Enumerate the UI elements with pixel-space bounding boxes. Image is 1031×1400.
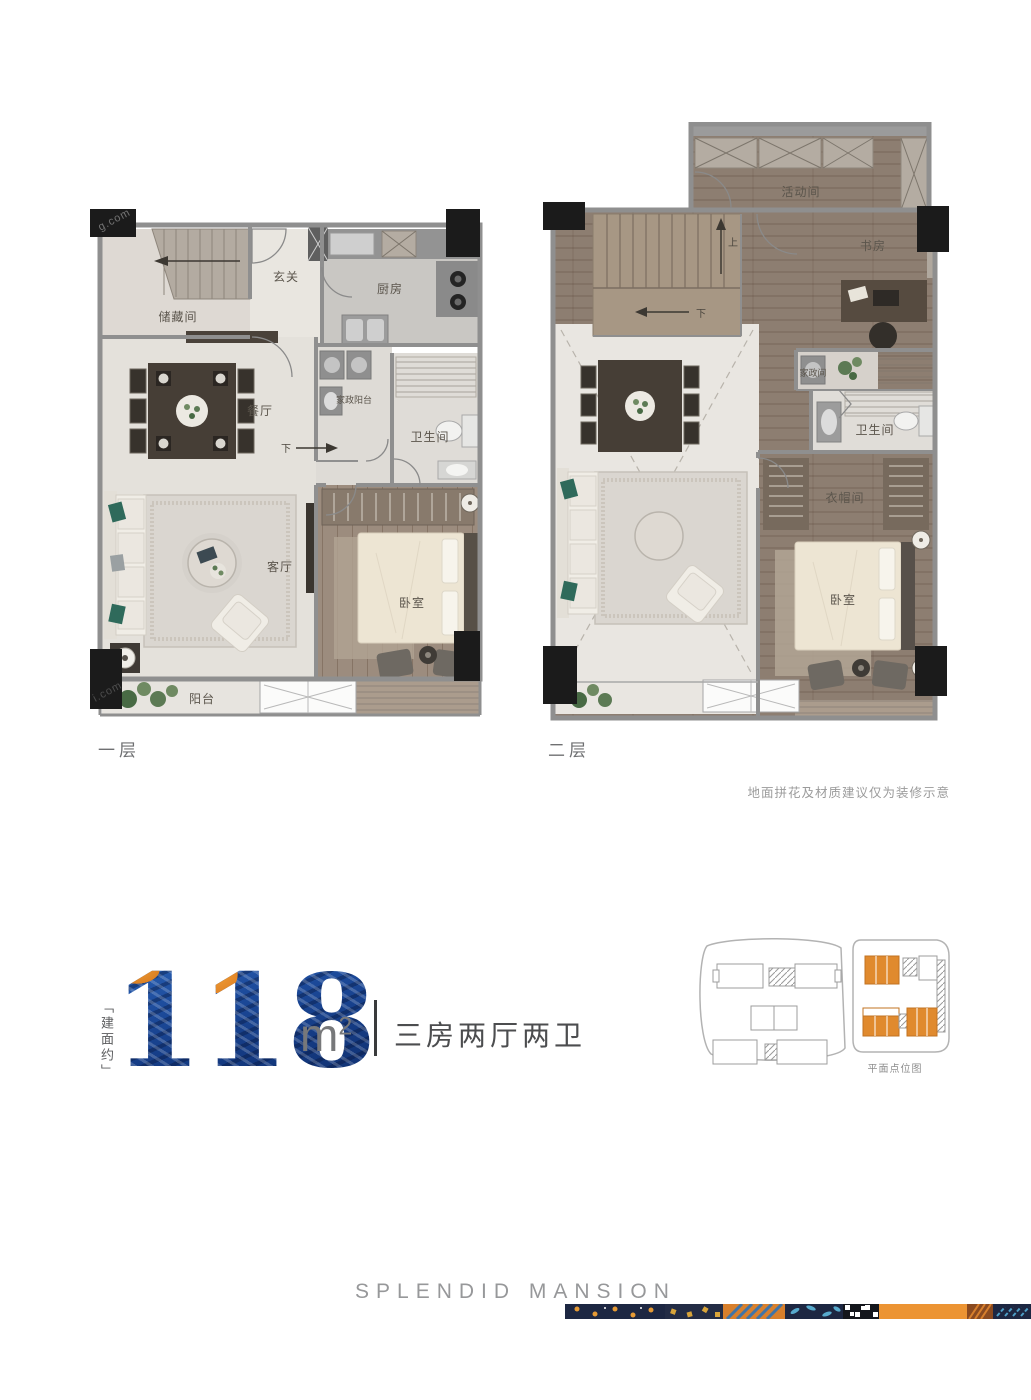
up-label: 上 [728,237,738,249]
area-unit-base: m [300,1009,338,1061]
floor2-plan: 活动间 书房 家政间 卫生间 衣帽间 卧室 上 下 [543,122,958,730]
floor1-plan: 储藏间 玄关 厨房 餐厅 家政阳台 卫生间 客厅 卧室 阳台 下 [90,203,490,728]
batik-strip [565,1304,1031,1319]
vanity-icon [438,461,476,479]
sink-icon [342,315,388,345]
floor2-caption: 二层 [548,736,590,761]
down-label-2: 下 [696,309,706,320]
highlighted-building [907,1008,937,1036]
room-label-bedroom2: 卧室 [830,592,856,607]
site-parcel-right [853,940,949,1052]
tv-console [306,503,314,593]
site-parcel-left [700,939,845,1064]
highlighted-building [865,956,899,984]
divider-line [374,1000,377,1056]
room-label-storage: 储藏间 [158,309,197,324]
room-label-entry: 玄关 [273,269,299,284]
slide-window [260,681,356,713]
site-map: 平面点位图 [685,930,955,1085]
room-label-bath2: 卫生间 [855,423,894,437]
dining-table [130,363,254,459]
drying-rack-hatch [878,350,935,386]
flue-shaft [308,227,328,261]
room-label-kitchen: 厨房 [377,281,403,296]
disclaimer-text: 地面拼花及材质建议仅为装修示意 [690,782,950,801]
slide-window-2 [703,680,799,712]
room-label-cloak: 衣帽间 [825,490,864,505]
site-map-caption: 平面点位图 [868,1062,923,1075]
stairs2 [593,214,741,336]
room-label-balcony: 阳台 [189,691,215,706]
bay-window2-hatch [795,700,935,716]
layout-text: 三房两厅两卫 [394,1014,586,1054]
bay-window-hatch [356,679,480,715]
room-label-dining: 餐厅 [247,403,273,418]
room-label-bedroom: 卧室 [399,595,425,610]
area-unit: m2 [300,1008,352,1062]
area-prefix: 「建面约」 [98,1000,114,1100]
room-label-bath: 卫生间 [410,430,449,444]
sofa [104,491,146,639]
room-label-laundry: 家政阳台 [336,394,372,405]
wardrobe [322,489,474,525]
room-label-living: 客厅 [267,559,293,574]
dining-table-2 [581,360,699,452]
floor1-caption: 一层 [98,736,140,761]
brand-name: SPLENDID MANSION [355,1280,676,1304]
room-label-laundry2: 家政间 [799,367,826,378]
down-label: 下 [281,444,291,455]
coffee-table-2 [635,512,683,560]
bed [358,533,478,643]
area-exponent: 2 [338,1013,352,1041]
sofa-2 [557,468,598,618]
room-label-study: 书房 [860,238,886,253]
coffee-table [188,539,236,587]
desk-chair [869,322,897,350]
room-label-activity: 活动间 [781,185,820,199]
shower-area [396,357,476,397]
